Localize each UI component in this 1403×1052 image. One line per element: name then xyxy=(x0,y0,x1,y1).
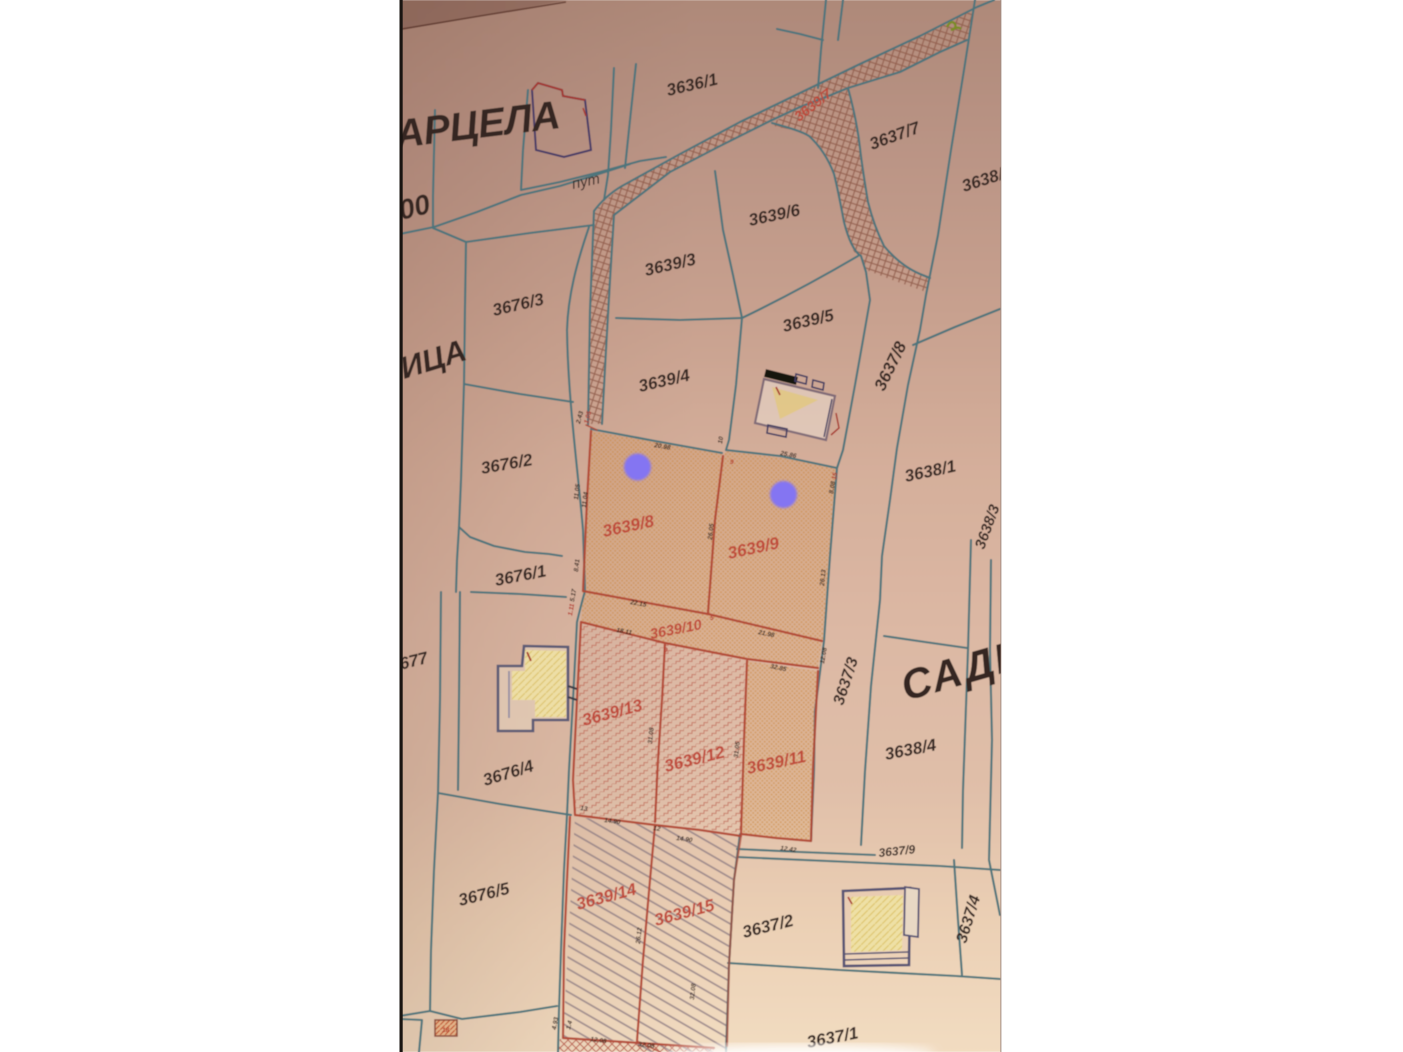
svg-text:9: 9 xyxy=(730,459,734,466)
svg-text:9: 9 xyxy=(664,647,668,654)
svg-text:13: 13 xyxy=(580,805,589,813)
svg-text:12: 12 xyxy=(653,825,662,833)
svg-text:5: 5 xyxy=(710,615,714,622)
svg-text:18: 18 xyxy=(442,1027,450,1034)
